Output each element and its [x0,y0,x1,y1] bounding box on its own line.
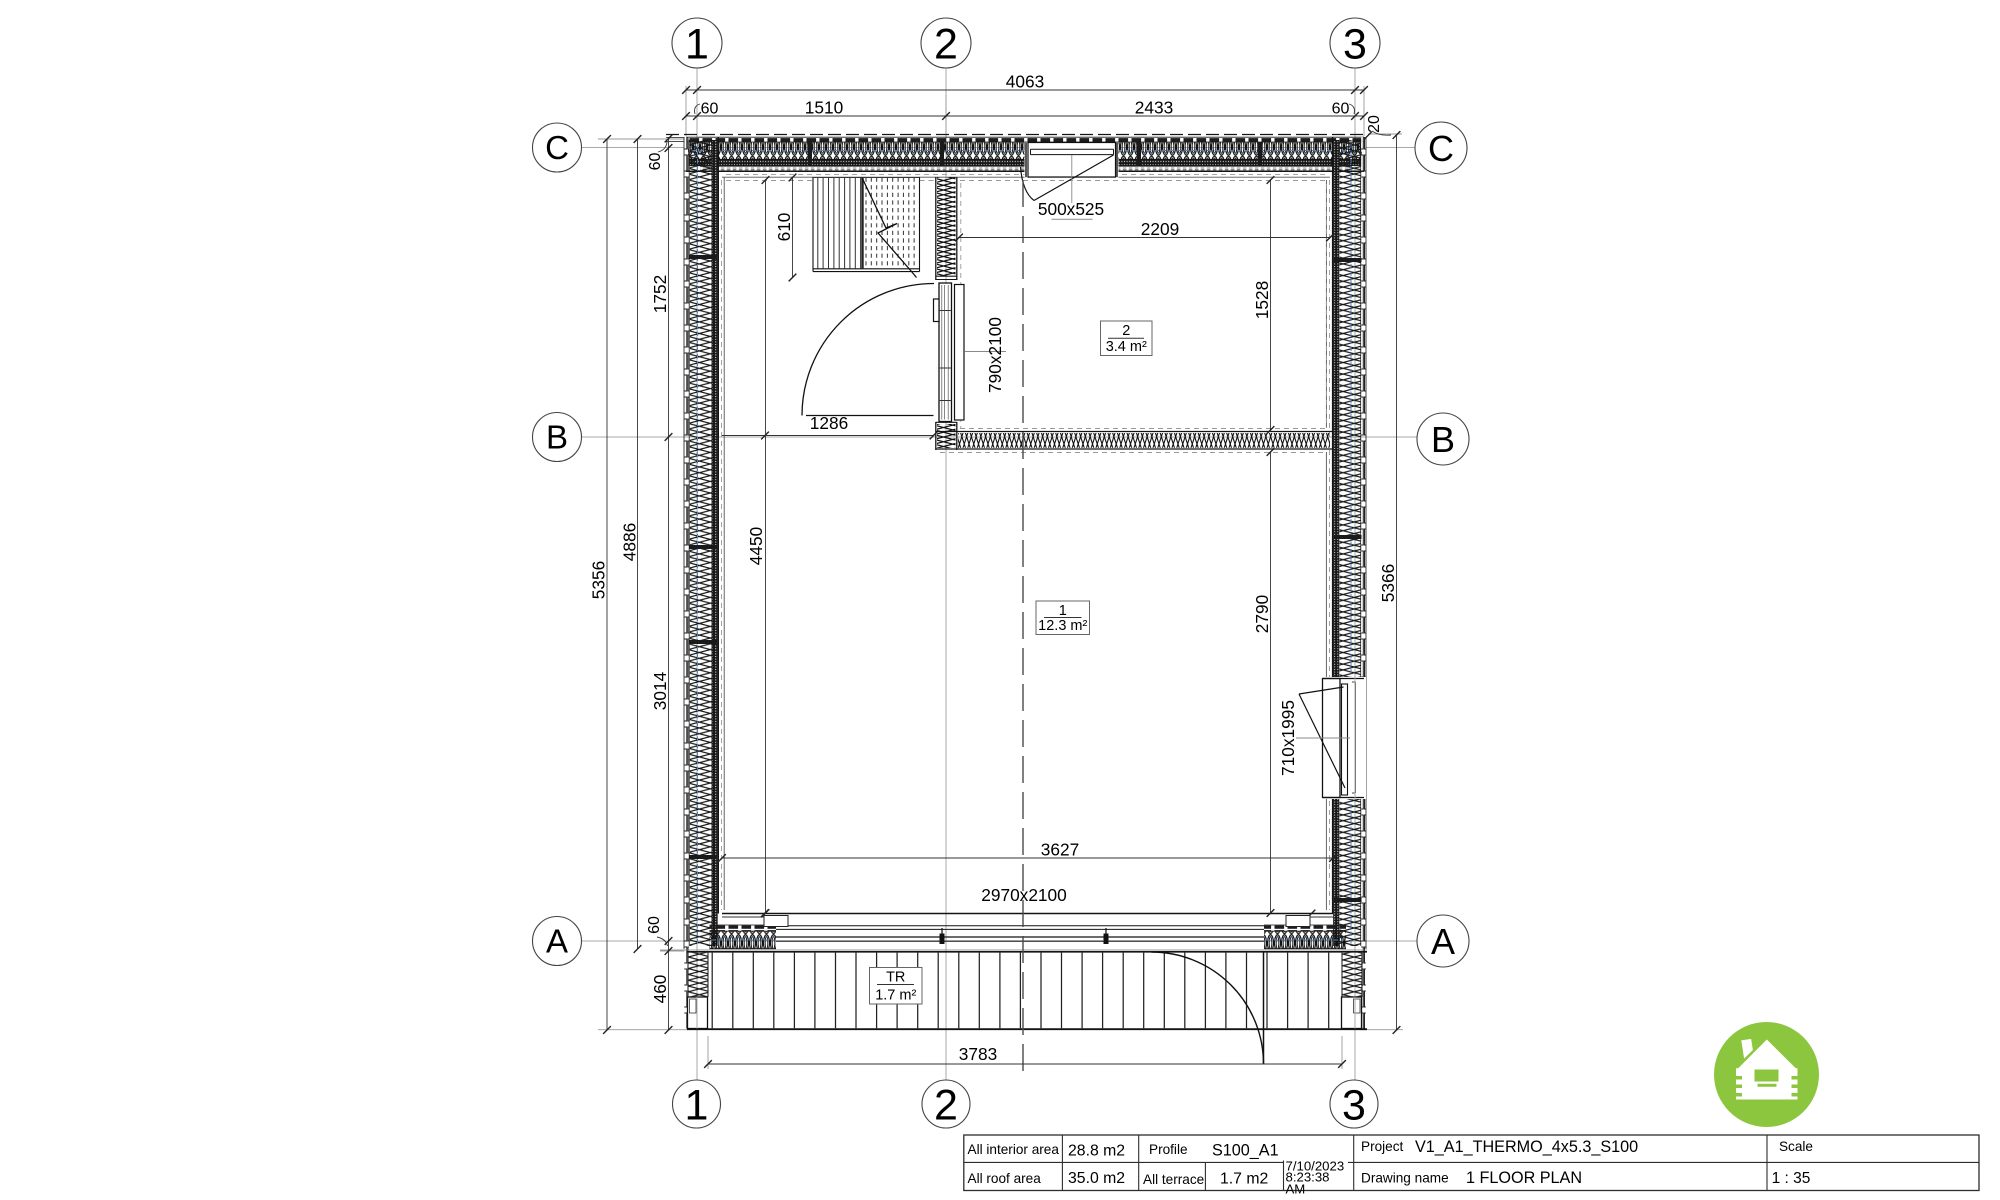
svg-text:3.4 m²: 3.4 m² [1106,339,1147,355]
svg-text:TR: TR [886,970,905,986]
svg-text:610: 610 [774,213,794,242]
svg-text:C: C [1428,128,1454,169]
svg-text:1510: 1510 [805,97,843,117]
svg-text:All interior area: All interior area [968,1142,1060,1157]
svg-text:1.7 m2: 1.7 m2 [1220,1171,1268,1188]
svg-text:1: 1 [1059,603,1067,619]
svg-text:Drawing name: Drawing name [1361,1171,1449,1186]
svg-text:2: 2 [934,20,958,68]
svg-text:1528: 1528 [1252,281,1272,319]
svg-text:3: 3 [1343,20,1367,68]
svg-text:4063: 4063 [1006,72,1044,92]
svg-text:2433: 2433 [1135,97,1173,117]
svg-text:1.7 m²: 1.7 m² [875,988,916,1004]
svg-text:4886: 4886 [620,523,640,561]
svg-text:12.3 m²: 12.3 m² [1038,618,1087,634]
svg-text:1286: 1286 [810,413,848,433]
svg-text:2: 2 [934,1081,958,1129]
svg-text:1: 1 [685,1081,709,1129]
svg-text:3: 3 [1342,1081,1366,1129]
svg-text:790x2100: 790x2100 [985,317,1005,393]
svg-text:All terrace: All terrace [1143,1172,1204,1187]
svg-text:B: B [546,419,568,456]
svg-text:2209: 2209 [1141,219,1179,239]
svg-text:1752: 1752 [650,275,670,313]
svg-text:3014: 3014 [650,671,670,710]
svg-text:5366: 5366 [1378,564,1398,602]
svg-text:1 FLOOR PLAN: 1 FLOOR PLAN [1466,1169,1582,1187]
svg-text:1: 1 [685,20,709,68]
svg-text:AM: AM [1286,1182,1306,1197]
svg-text:2790: 2790 [1252,595,1272,633]
svg-text:V1_A1_THERMO_4x5.3_S100: V1_A1_THERMO_4x5.3_S100 [1415,1138,1638,1156]
svg-text:3627: 3627 [1041,840,1079,860]
svg-text:Profile: Profile [1149,1142,1188,1157]
svg-text:60: 60 [1332,100,1350,117]
svg-text:All roof area: All roof area [968,1171,1042,1186]
svg-text:20: 20 [1366,115,1383,133]
svg-text:2: 2 [1122,323,1130,339]
svg-text:35.0 m2: 35.0 m2 [1068,1170,1125,1187]
svg-text:S100_A1: S100_A1 [1212,1142,1279,1160]
svg-text:3783: 3783 [959,1044,997,1064]
svg-text:2970x2100: 2970x2100 [981,885,1067,905]
svg-text:4450: 4450 [746,527,766,565]
svg-text:60: 60 [646,916,663,934]
svg-text:500x525: 500x525 [1038,199,1104,219]
svg-text:460: 460 [650,975,670,1004]
svg-text:28.8 m2: 28.8 m2 [1068,1143,1125,1160]
svg-text:1 : 35: 1 : 35 [1772,1170,1811,1187]
svg-text:60: 60 [701,100,719,117]
svg-text:710x1995: 710x1995 [1278,700,1298,776]
svg-text:Scale: Scale [1779,1139,1813,1154]
svg-text:C: C [545,129,569,166]
svg-text:B: B [1431,419,1455,460]
svg-text:A: A [1431,921,1455,962]
svg-text:Project: Project [1361,1139,1404,1154]
svg-text:5356: 5356 [589,561,609,599]
svg-text:A: A [546,923,568,960]
svg-text:60: 60 [647,153,664,171]
